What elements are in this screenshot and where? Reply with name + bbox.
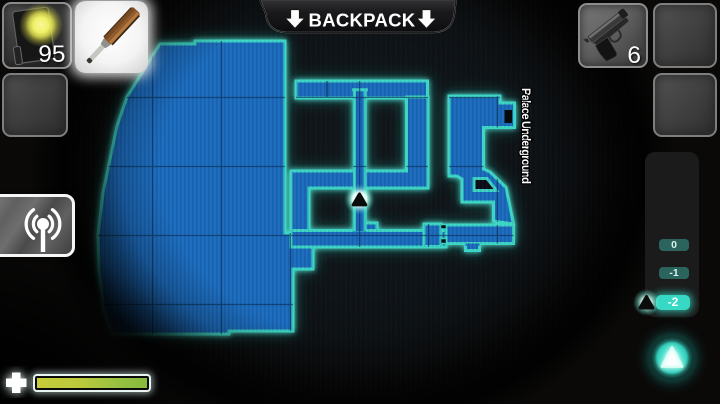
svg-text:BACKPACK: BACKPACK (309, 10, 416, 31)
svg-text:6: 6 (627, 42, 641, 68)
svg-text:95: 95 (38, 41, 65, 68)
